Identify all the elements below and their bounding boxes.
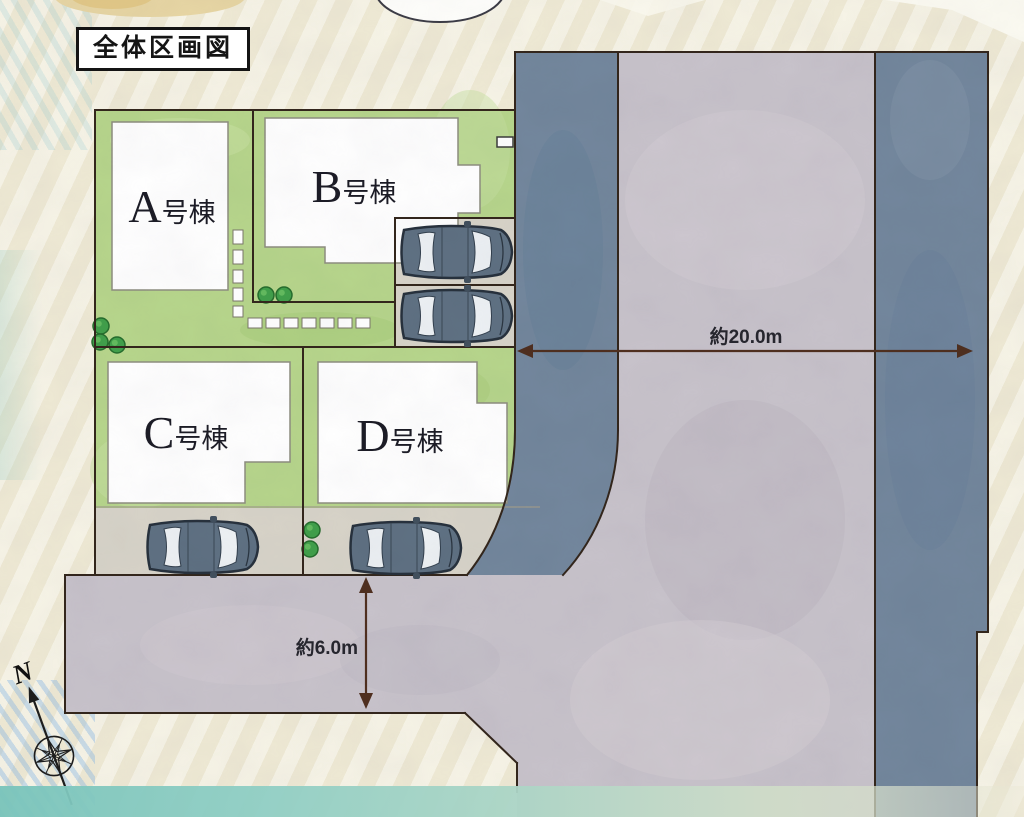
plan-title: 全体区画図 (76, 27, 250, 71)
site-plan-page: A号棟 B号棟 C号棟 D号棟 約20.0m 約6.0m (0, 0, 1024, 817)
site-plan-drawing: A号棟 B号棟 C号棟 D号棟 約20.0m 約6.0m (0, 0, 1024, 817)
paper-grain-overlay (0, 0, 1024, 817)
